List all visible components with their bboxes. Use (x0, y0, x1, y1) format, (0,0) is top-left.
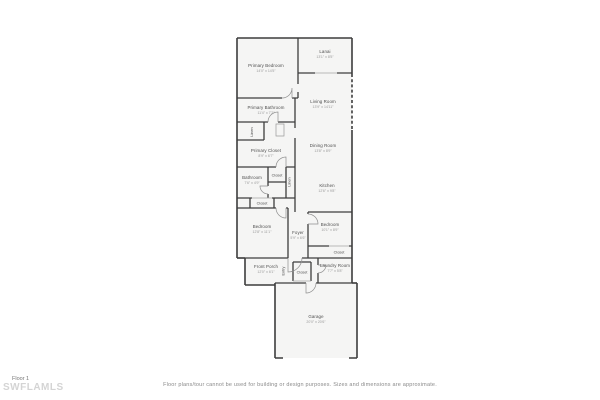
room-label-bathroom: Bathroom (242, 175, 262, 180)
room-dims-bedroom-left: 12'8" x 11'1" (253, 230, 273, 234)
room-dims-kitchen: 12'6" x 9'8" (318, 189, 336, 193)
room-dims-bedroom-right: 10'1" x 8'9" (321, 228, 339, 232)
room-label-kitchen: Kitchen (319, 183, 335, 188)
room-label-closet-hall: Closet (257, 202, 269, 206)
room-label-primary-bathroom: Primary Bathroom (248, 105, 285, 110)
room-dims-dining-room: 13'8" x 8'9" (314, 149, 332, 153)
room-label-laundry-room: Laundry Room (320, 263, 350, 268)
floor-plan-page: Primary Bedroom 14'0" x 14'5" Lanai 13'1… (0, 0, 600, 400)
room-label-linen-2: Linen (288, 177, 292, 186)
room-dims-garage: 20'0" x 20'6" (306, 320, 326, 324)
room-dims-living-room: 13'9" x 14'11" (313, 105, 335, 109)
room-label-front-porch: Front Porch (254, 264, 278, 269)
room-dims-foyer: 5'9" x 6'6" (290, 236, 306, 240)
room-dims-primary-bathroom: 11'4" x 7'2" (258, 111, 276, 115)
room-label-closet-foyer: Closet (297, 271, 309, 275)
room-label-lanai: Lanai (319, 49, 330, 54)
room-label-closet-bath: Closet (272, 174, 284, 178)
room-label-primary-bedroom: Primary Bedroom (248, 63, 284, 68)
room-dims-bathroom: 7'6" x 4'9" (244, 181, 260, 185)
room-label-primary-closet: Primary Closet (251, 148, 282, 153)
room-label-closet-bedroom2: Closet (334, 251, 346, 255)
room-dims-primary-bedroom: 14'0" x 14'5" (256, 69, 276, 73)
room-label-garage: Garage (308, 314, 324, 319)
disclaimer-text: Floor plans/tour cannot be used for buil… (0, 382, 600, 388)
room-label-bedroom-right: Bedroom (321, 222, 340, 227)
room-label-entry: Entry (282, 266, 286, 275)
room-label-linen-1: Linen (250, 127, 254, 136)
room-dims-laundry-room: 7'7" x 5'8" (327, 269, 343, 273)
floor-plan-drawing: Primary Bedroom 14'0" x 14'5" Lanai 13'1… (0, 0, 600, 400)
room-dims-lanai: 13'1" x 8'5" (316, 55, 334, 59)
room-label-foyer: Foyer (292, 230, 304, 235)
room-label-bedroom-left: Bedroom (253, 224, 272, 229)
room-label-living-room: Living Room (310, 99, 336, 104)
room-dims-primary-closet: 8'9" x 6'7" (258, 154, 274, 158)
room-label-dining-room: Dining Room (310, 143, 337, 148)
room-dims-front-porch: 12'0" x 6'1" (257, 270, 275, 274)
